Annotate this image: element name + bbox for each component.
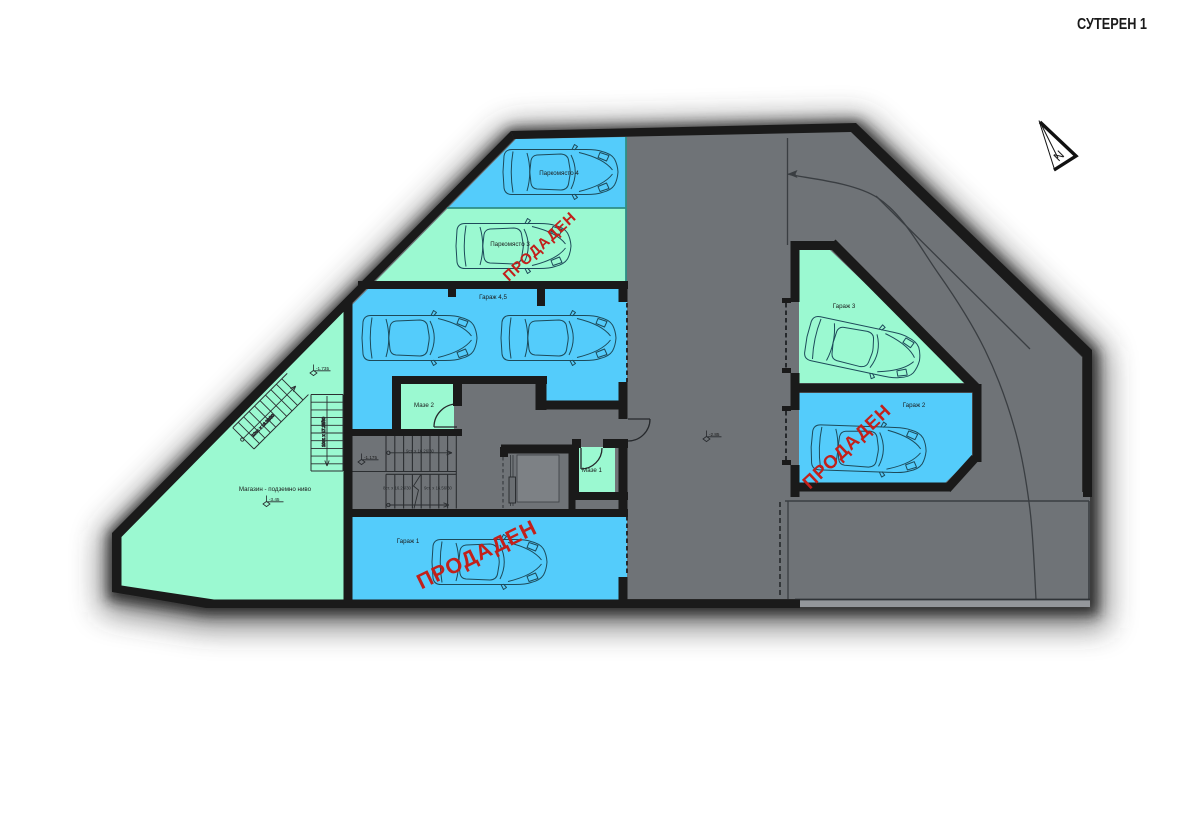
svg-text:8ст. х 16.26/30: 8ст. х 16.26/30 <box>383 486 411 491</box>
svg-text:Магазин - подземно ниво: Магазин - подземно ниво <box>239 486 312 493</box>
svg-text:Мазе 1: Мазе 1 <box>582 467 603 474</box>
svg-text:Паркомясто 3: Паркомясто 3 <box>490 241 530 248</box>
svg-text:-2.85: -2.85 <box>709 432 720 437</box>
svg-text:Гараж 1: Гараж 1 <box>397 538 420 545</box>
svg-text:-1.175: -1.175 <box>364 455 377 460</box>
svg-text:9ст. х 16.56/30: 9ст. х 16.56/30 <box>424 486 452 491</box>
svg-text:10ст. х 17.25/30: 10ст. х 17.25/30 <box>321 416 326 447</box>
svg-text:Гараж 4,5: Гараж 4,5 <box>479 294 507 301</box>
svg-text:-1.735: -1.735 <box>316 366 329 371</box>
svg-text:Паркомясто 4: Паркомясто 4 <box>539 170 579 177</box>
svg-text:-3.45: -3.45 <box>269 497 280 502</box>
svg-text:Мазе 2: Мазе 2 <box>414 402 435 409</box>
svg-text:СУТЕРЕН 1: СУТЕРЕН 1 <box>1077 16 1147 33</box>
svg-text:Гараж 3: Гараж 3 <box>833 303 856 310</box>
svg-text:9ст. х 16.26/30: 9ст. х 16.26/30 <box>406 449 434 454</box>
svg-text:Гараж 2: Гараж 2 <box>903 402 926 409</box>
